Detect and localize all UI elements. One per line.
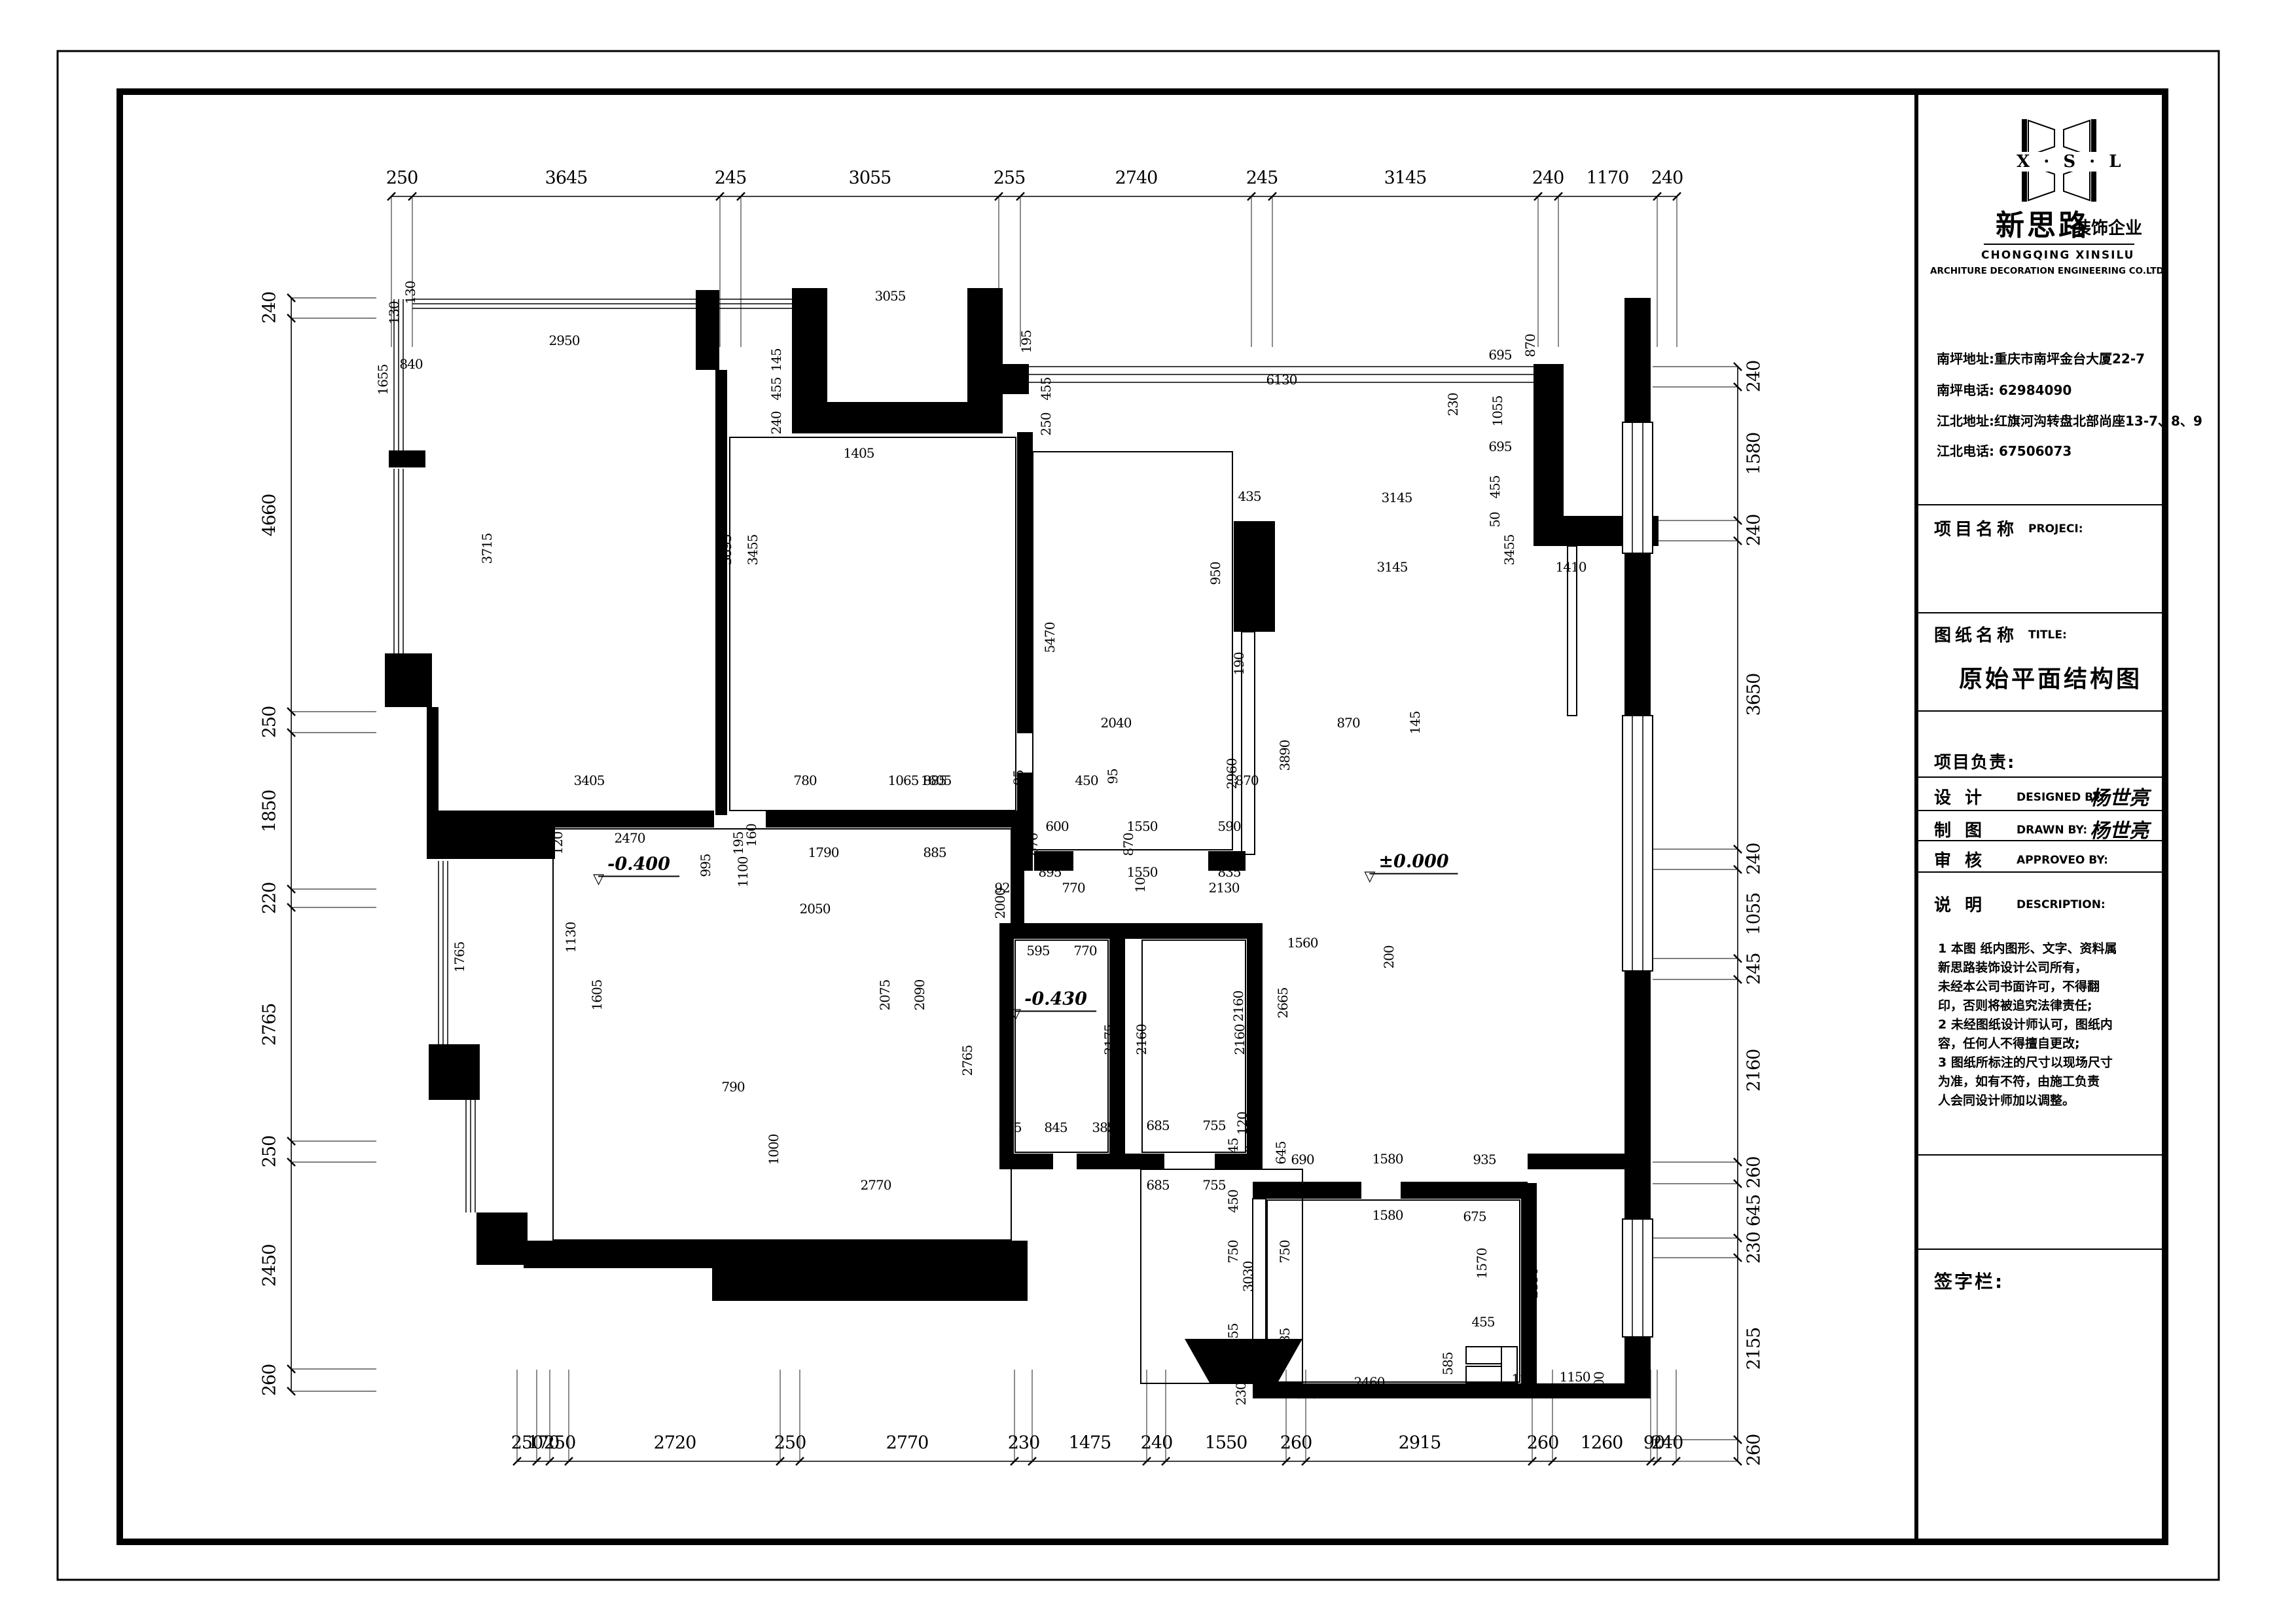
interior-dim: 1410	[1556, 559, 1587, 575]
outer-border	[58, 51, 2219, 1580]
interior-dim: 3890	[1277, 740, 1293, 771]
interior-dim: 870	[1235, 773, 1258, 788]
chain-bottom-dim: 2770	[886, 1433, 929, 1453]
leader-label: 项目负责:	[1934, 749, 2015, 773]
divider	[1918, 710, 2162, 712]
interior-dim: 950	[1208, 562, 1223, 585]
interior-dim: 2130	[1209, 880, 1240, 896]
interior-dim: 120	[550, 831, 565, 854]
interior-dim: 870	[1522, 334, 1538, 357]
interior-dim: 1100	[735, 857, 751, 888]
drawing-title: 原始平面结构图	[1959, 660, 2142, 694]
interior-dim: 230	[1233, 1382, 1249, 1405]
divider	[1918, 504, 2162, 505]
designer-signature: 杨世亮	[2090, 782, 2149, 811]
interior-dim: 885	[923, 845, 946, 860]
frame-border	[120, 92, 2165, 1542]
desc-en: DESCRIPTION:	[2017, 898, 2106, 911]
chain-top-dim: 250	[386, 168, 418, 189]
interior-dim: 695	[1488, 439, 1511, 454]
interior-dim: 2075	[877, 980, 893, 1011]
interior-dim: 590	[1217, 818, 1240, 834]
chain-left-dim: 250	[260, 1136, 280, 1168]
interior-dim: 3145	[1377, 559, 1408, 575]
interior-dim: 3715	[479, 534, 495, 564]
interior-dim: 2765	[960, 1046, 975, 1076]
interior-dim: 2950	[549, 333, 580, 348]
company-en2: ARCHITURE DECORATION ENGINEERING CO.LTD	[1930, 266, 2164, 276]
description-note-line: 未经本公司书面许可，不得翻	[1938, 977, 2117, 996]
description-note-line: 1 本图 纸内图形、文字、资料属	[1938, 939, 2117, 958]
chain-right-dim: 260	[1744, 1434, 1765, 1467]
chain-top-dim: 245	[1246, 168, 1278, 189]
level-triangle-icon: ▽	[1364, 869, 1375, 885]
interior-dim: 2160	[1134, 1025, 1149, 1055]
chain-left-dim: 220	[260, 883, 280, 915]
interior-dim: 230	[1445, 393, 1461, 416]
interior-dim: 885	[923, 773, 946, 788]
drafter-signature: 杨世亮	[2090, 814, 2149, 843]
interior-dim: 1550	[1127, 818, 1158, 834]
chain-right-dim: 3650	[1744, 674, 1765, 716]
level-triangle-icon: ▽	[593, 871, 604, 888]
check-en: APPROVEO BY:	[2017, 854, 2108, 867]
chain-right-dim: 645	[1744, 1195, 1765, 1227]
interior-dim: 95	[1105, 769, 1121, 784]
chain-left-dim: 1850	[260, 790, 280, 833]
signature-field-label: 签字栏:	[1934, 1267, 2004, 1294]
interior-dim: 2460	[1354, 1374, 1385, 1390]
divider	[1918, 840, 2162, 841]
interior-dim: 1550	[1127, 864, 1158, 880]
interior-dim: 770	[1073, 943, 1096, 958]
level-marker: ▽±0.000	[1369, 852, 1458, 875]
divider	[1918, 1249, 2162, 1250]
chain-right-dim: 240	[1744, 515, 1765, 547]
interior-dim: 645	[1225, 1138, 1241, 1161]
level-marker: ▽-0.430	[1015, 989, 1096, 1012]
interior-dim: 750	[1277, 1240, 1293, 1263]
interior-dim: 645	[1273, 1141, 1289, 1164]
logo-xsl-text: X · S · L	[2015, 152, 2126, 172]
description-note-line: 容，任何人不得擅自更改;	[1938, 1034, 2117, 1053]
chain-bottom-dim: 2720	[654, 1433, 696, 1453]
draw-label: 制 图	[1934, 817, 1986, 841]
interior-dim: 2175	[1102, 1025, 1117, 1055]
drawing-sheet: 2503645245305525527402453145240117024025…	[0, 0, 2296, 1623]
interior-dim: 870	[1121, 833, 1136, 856]
interior-dim: 2175	[1000, 1025, 1016, 1055]
interior-dim: 595	[1026, 943, 1049, 958]
interior-dim: 870	[1025, 833, 1041, 856]
interior-dim: 835	[1217, 864, 1240, 880]
interior-dim: 1560	[1287, 935, 1318, 951]
interior-dim: 450	[1075, 773, 1098, 788]
interior-dim: 1605	[589, 980, 605, 1011]
chain-bottom-dim: 1260	[1581, 1433, 1623, 1453]
interior-dim: 3030	[1240, 1262, 1256, 1292]
interior-dim: 2160	[1232, 1025, 1247, 1055]
interior-dim: 100	[1242, 1145, 1258, 1168]
level-value: ±0.000	[1369, 852, 1458, 875]
level-value: -0.430	[1015, 989, 1096, 1012]
interior-dim: 2770	[861, 1177, 891, 1193]
level-marker: ▽-0.400	[598, 854, 679, 877]
interior-dim: 6130	[1266, 372, 1297, 388]
logo-underline	[1984, 244, 2134, 245]
interior-dim: 1655	[375, 365, 391, 395]
interior-dim: 130	[403, 281, 418, 304]
chain-top-dim: 240	[1651, 168, 1683, 189]
interior-dim: 120	[1234, 1112, 1250, 1135]
interior-dim: 3145	[1382, 490, 1412, 505]
chain-top-dim: 3055	[849, 168, 891, 189]
interior-dim: 385	[1092, 1120, 1115, 1135]
interior-dim: 455	[768, 377, 784, 400]
address-1: 南坪地址:重庆市南坪金台大厦22-7	[1937, 348, 2145, 367]
interior-dim: 240	[768, 411, 784, 434]
chain-top-dim: 3145	[1384, 168, 1427, 189]
chain-bottom-dim: 240	[1651, 1433, 1683, 1453]
interior-dim: 455	[1471, 1314, 1494, 1330]
interior-dim: 1000	[766, 1135, 781, 1165]
interior-dim: 110	[1511, 1371, 1534, 1387]
interior-dim: 190	[1231, 652, 1247, 675]
address-3: 江北地址:红旗河沟转盘北部尚座13-7、8、9	[1937, 410, 2202, 429]
interior-dim: 995	[698, 854, 713, 877]
interior-dim: 755	[1202, 1118, 1225, 1133]
interior-dim: 200	[1381, 945, 1397, 968]
chain-top-dim: 245	[715, 168, 747, 189]
interior-dim: 5470	[1042, 623, 1058, 653]
chain-right-dim: 1055	[1744, 893, 1765, 936]
description-note-line: 3 图纸所标注的尺寸以现场尺寸	[1938, 1053, 2117, 1072]
description-note-line: 新思路装饰设计公司所有，	[1938, 958, 2117, 977]
interior-dim: 790	[721, 1079, 744, 1095]
chain-bottom-dim: 1475	[1069, 1433, 1111, 1453]
interior-dim: 1055	[1490, 396, 1505, 427]
interior-dim: 145	[768, 348, 784, 371]
chain-right-dim: 240	[1744, 843, 1765, 875]
interior-dim: 300	[1591, 1372, 1607, 1395]
chain-bottom-dim: 2915	[1399, 1433, 1441, 1453]
interior-dim: 750	[1225, 1240, 1241, 1263]
chain-bottom-dim: 250	[774, 1433, 806, 1453]
chain-bottom-dim: 230	[1008, 1433, 1040, 1453]
chain-right-dim: 245	[1744, 953, 1765, 985]
interior-dim: 3405	[574, 773, 605, 788]
interior-dim: 1580	[1372, 1207, 1403, 1223]
interior-dim: 50	[1487, 512, 1503, 527]
chain-left-dim: 240	[260, 292, 280, 324]
interior-dim: 2040	[1101, 715, 1132, 731]
interior-dim: 1150	[1560, 1369, 1590, 1385]
chain-right-dim: 1580	[1744, 433, 1765, 475]
interior-dim: 755	[1202, 1177, 1225, 1193]
company-suffix: 装饰企业	[2074, 215, 2142, 239]
chain-top-dim: 240	[1532, 168, 1564, 189]
interior-dim: 2050	[800, 901, 831, 917]
description-note-line: 印，否则将被追究法律责任;	[1938, 996, 2117, 1015]
interior-dim: 3055	[875, 288, 906, 304]
interior-dim: 1570	[1474, 1249, 1490, 1279]
divider	[1918, 871, 2162, 873]
interior-dim: 250	[1038, 412, 1054, 435]
chain-bottom-dim: 240	[1141, 1433, 1173, 1453]
interior-dim: 935	[1473, 1152, 1496, 1167]
chain-left-dim: 4660	[260, 494, 280, 537]
chain-left-dim: 2450	[260, 1245, 280, 1287]
interior-dim: 685	[1146, 1177, 1169, 1193]
interior-dim: 920	[994, 880, 1017, 896]
interior-dim: 695	[1488, 347, 1511, 363]
chain-right-dim: 240	[1744, 361, 1765, 393]
interior-dim: 160	[744, 824, 759, 847]
interior-dim: 895	[1038, 864, 1061, 880]
interior-dim: 450	[1225, 1190, 1241, 1213]
description-note-line: 2 未经图纸设计师认可，图纸内	[1938, 1015, 2117, 1034]
interior-dim: 230	[1234, 1353, 1250, 1376]
chain-left-dim: 250	[260, 706, 280, 739]
draw-en: DRAWN BY:	[2017, 824, 2087, 837]
company-en1: CHONGQING XINSILU	[1981, 249, 2134, 262]
interior-dim: 1405	[844, 445, 874, 461]
interior-dim: 1185	[1277, 1328, 1293, 1359]
interior-dim: 2160	[1230, 991, 1246, 1022]
level-triangle-icon: ▽	[1010, 1006, 1021, 1023]
drawing-en: TITLE:	[2028, 629, 2067, 642]
interior-dim: 840	[399, 356, 422, 372]
chain-top-dim: 255	[994, 168, 1026, 189]
interior-dim: 2665	[1275, 988, 1291, 1019]
interior-dim: 1765	[452, 942, 467, 973]
description-note-line: 人会同设计师加以调整。	[1938, 1091, 2117, 1110]
interior-dim: 1320	[1287, 1386, 1318, 1402]
design-label: 设 计	[1934, 784, 1986, 809]
interior-dim: 95	[1011, 770, 1026, 785]
interior-dim: 3455	[1501, 535, 1517, 566]
chain-top-dim: 2740	[1115, 168, 1158, 189]
interior-dim: 455	[1487, 475, 1503, 498]
chain-bottom-dim: 250	[544, 1433, 576, 1453]
interior-dim: 130	[386, 301, 402, 324]
interior-dim: 955	[1225, 1323, 1241, 1346]
chain-top-dim: 3645	[545, 168, 588, 189]
desc-label: 说 明	[1934, 892, 1986, 916]
interior-dim: 685	[1146, 1118, 1169, 1133]
interior-dim: 3695	[719, 535, 734, 566]
interior-dim: 2470	[615, 830, 645, 846]
project-label: 项目名称	[1934, 516, 2018, 540]
chain-left-dim: 2765	[260, 1004, 280, 1046]
interior-dim: 1580	[1372, 1151, 1403, 1167]
walls	[385, 288, 1659, 1398]
address-4: 江北电话: 67506073	[1937, 441, 2072, 460]
divider	[1918, 612, 2162, 613]
project-en: PROJECI:	[2028, 522, 2083, 536]
chain-bottom-dim: 260	[1280, 1433, 1312, 1453]
description-notes: 1 本图 纸内图形、文字、资料属 新思路装饰设计公司所有， 未经本公司书面许可，…	[1938, 939, 2117, 1110]
chain-right-dim: 260	[1744, 1157, 1765, 1189]
address-2: 南坪电话: 62984090	[1937, 380, 2072, 399]
interior-dim: 1790	[808, 845, 839, 860]
interior-dim: 770	[1062, 880, 1085, 896]
interior-dim: 690	[1291, 1152, 1314, 1167]
chain-top-dim: 1170	[1587, 168, 1629, 189]
interior-dim: 845	[1044, 1120, 1067, 1135]
divider	[1918, 776, 2162, 778]
interior-dim: 780	[793, 773, 816, 788]
interior-dim: 675	[1463, 1209, 1486, 1224]
chain-bottom-dim: 1550	[1205, 1433, 1247, 1453]
level-value: -0.400	[598, 854, 679, 877]
chain-left-dim: 260	[260, 1364, 280, 1396]
interior-dim: 3455	[745, 535, 761, 566]
chain-bottom-dim: 260	[1527, 1433, 1559, 1453]
divider	[1918, 1154, 2162, 1156]
interior-dim: 2090	[912, 980, 927, 1011]
description-note-line: 为准，如有不符，由施工负责	[1938, 1072, 2117, 1091]
interior-dim: 335	[998, 1120, 1021, 1135]
interior-dim: 435	[1238, 488, 1261, 504]
check-label: 审 核	[1934, 847, 1986, 871]
title-block: X · S · L 新思路 装饰企业 CHONGQING XINSILU ARC…	[1914, 92, 2162, 1542]
drawing-name-label: 图纸名称	[1934, 622, 2018, 646]
interior-dim: 2390	[1525, 1268, 1541, 1299]
divider	[1918, 810, 2162, 811]
interior-dim: 870	[1336, 715, 1359, 731]
interior-dim: 195	[1018, 330, 1034, 353]
chain-right-dim: 2160	[1744, 1049, 1765, 1092]
chain-right-dim: 230	[1744, 1232, 1765, 1264]
interior-dim: 145	[1407, 711, 1423, 734]
interior-dim: 455	[1038, 377, 1054, 400]
interior-dim: 1130	[563, 922, 579, 953]
chain-right-dim: 2155	[1744, 1328, 1765, 1370]
interior-dim: 600	[1045, 818, 1068, 834]
interior-dim: 1065	[888, 773, 919, 788]
interior-dim: 585	[1440, 1352, 1456, 1375]
